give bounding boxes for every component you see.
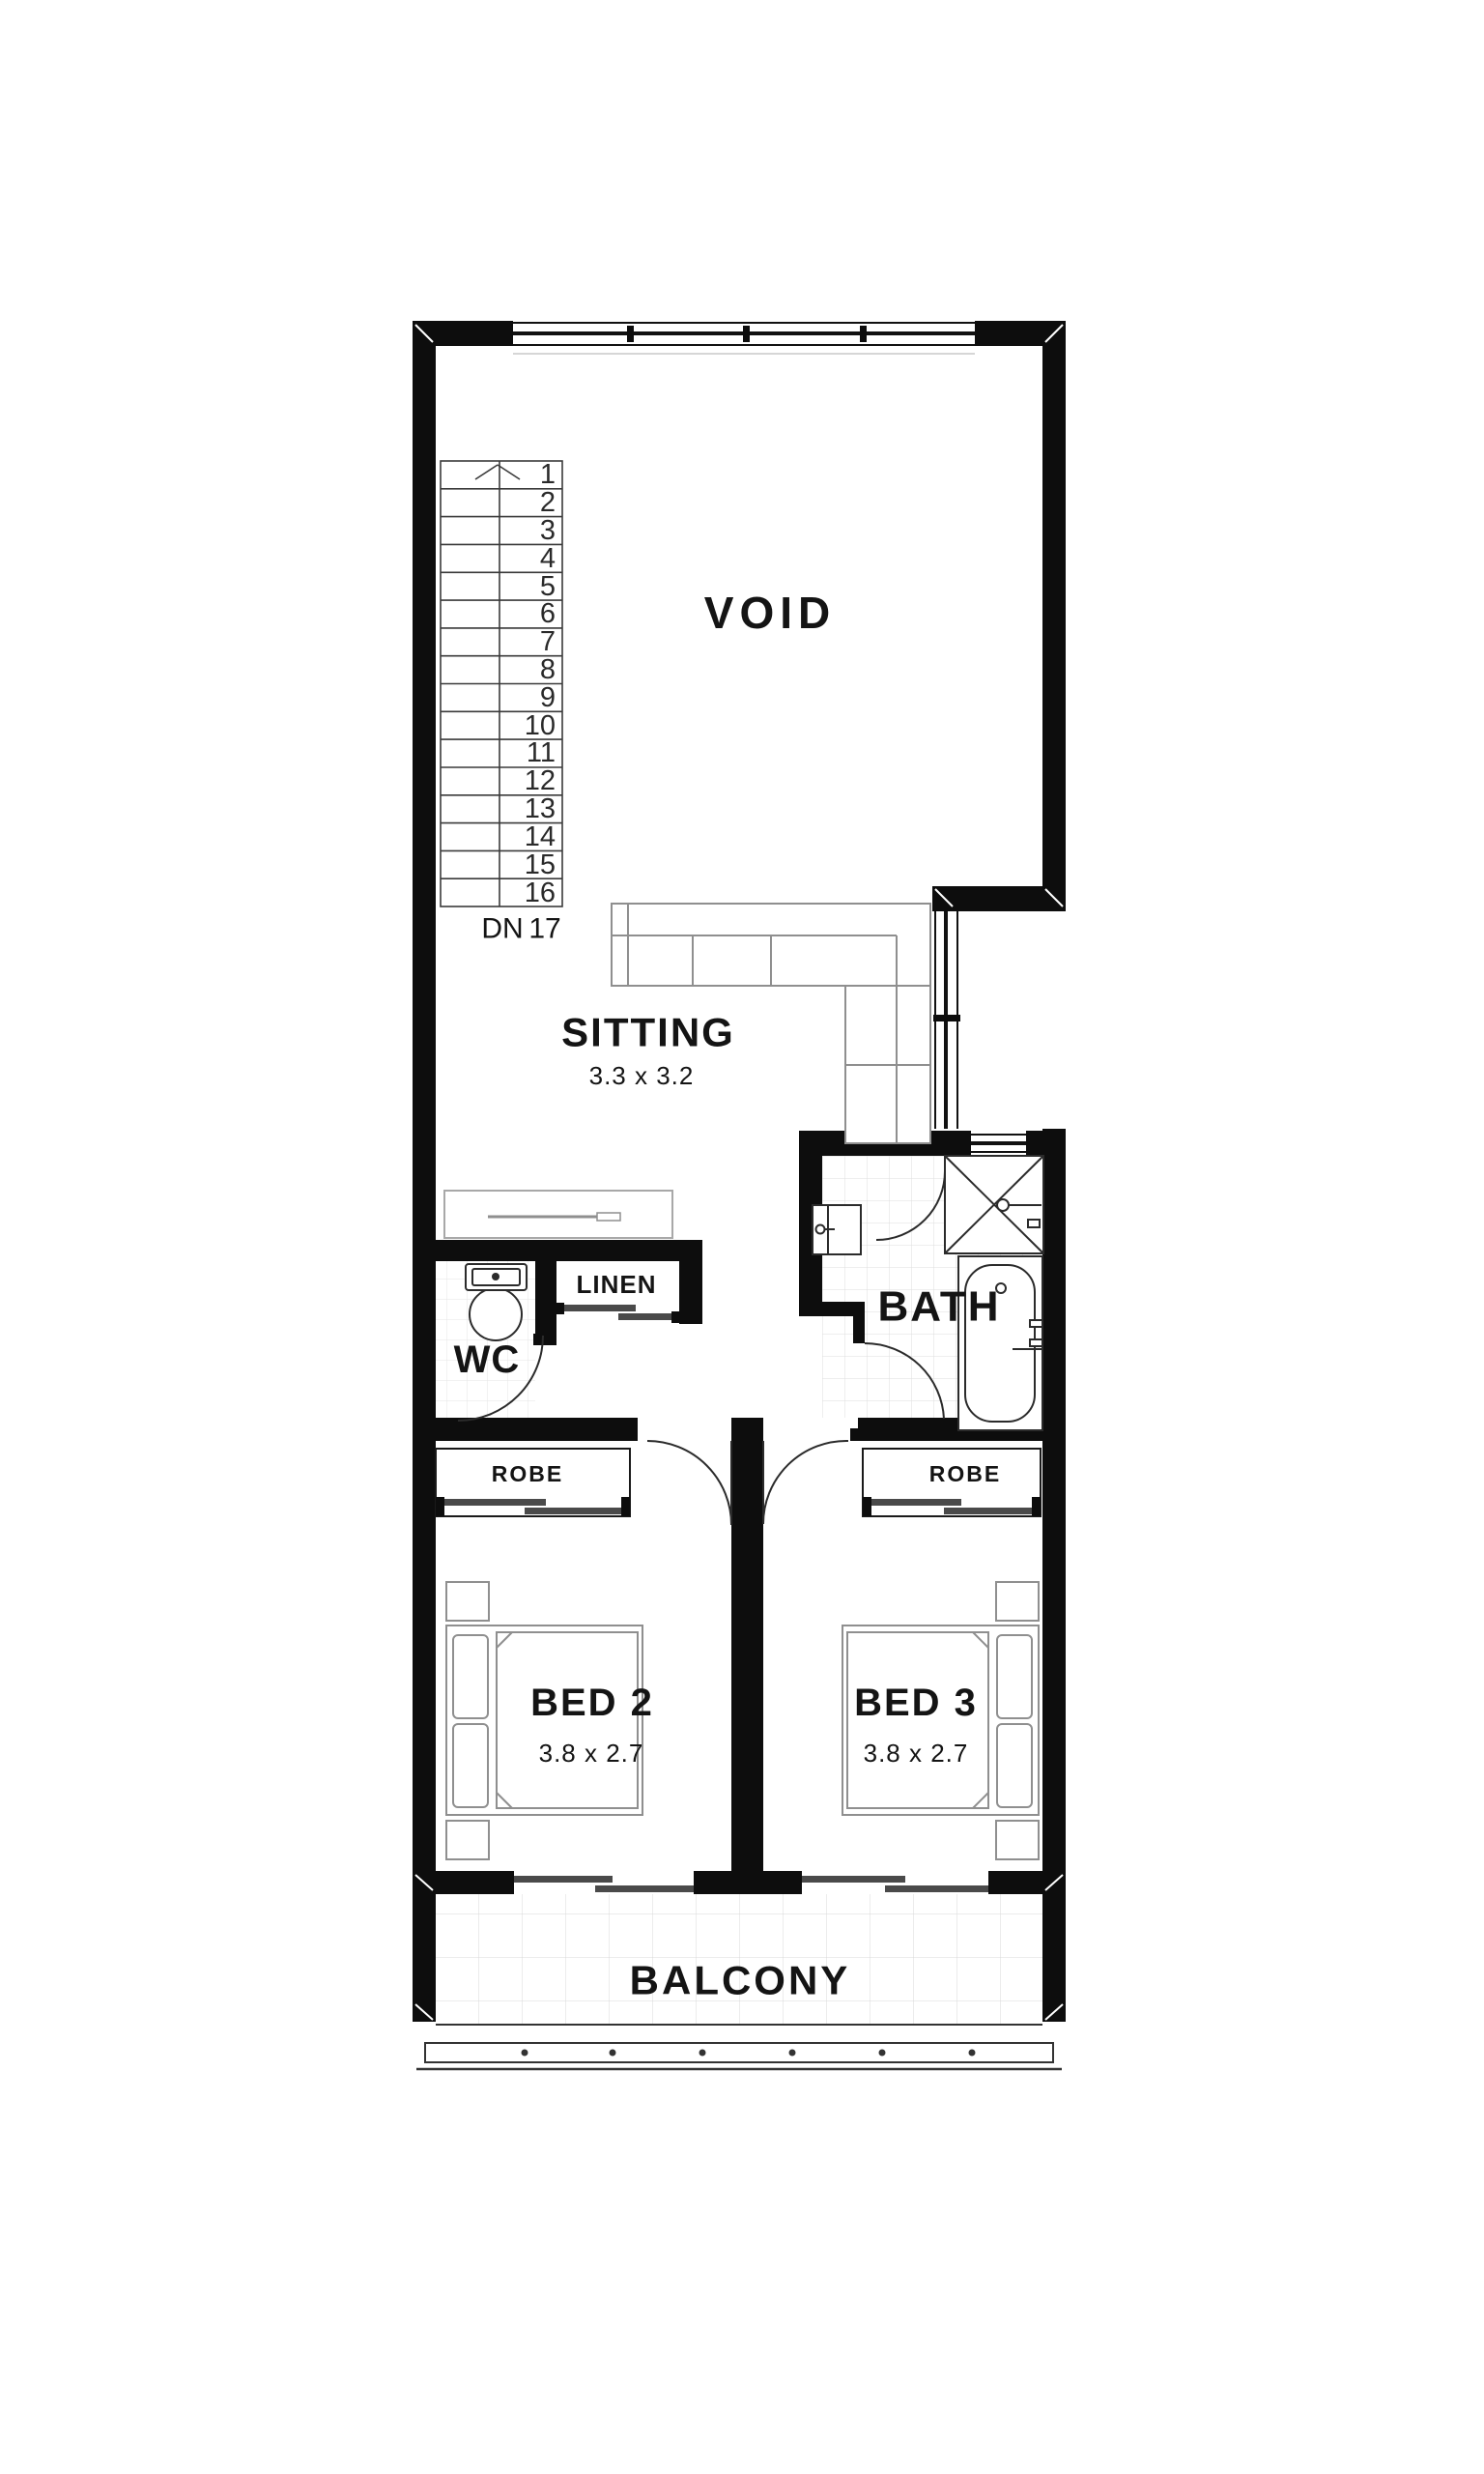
- step-number: 2: [540, 487, 556, 518]
- bath-window: [971, 1135, 1026, 1152]
- step-number: 8: [540, 654, 556, 685]
- void-room-label: VOID: [704, 588, 836, 638]
- step-number: 13: [525, 793, 556, 824]
- sitting-window: [931, 911, 960, 1129]
- balcony-railing: [416, 2025, 1062, 2069]
- step-number: 14: [525, 821, 556, 852]
- bath-room-label: BATH: [878, 1283, 1001, 1331]
- linen-closet: [556, 1303, 679, 1323]
- robe-right-label: ROBE: [929, 1461, 1001, 1486]
- bed3-room-dimensions: 3.8 x 2.7: [864, 1739, 969, 1768]
- floor-plan-canvas: 1 2 3 4 5 6 7 8 9 10 11 12 13 14 15 16 D…: [0, 0, 1484, 2474]
- stairs-down-label: DN: [481, 913, 523, 945]
- balcony-room-label: BALCONY: [630, 1958, 851, 2003]
- step-number: 3: [540, 515, 556, 546]
- top-window: [513, 319, 975, 354]
- bed2-room-label: BED 2: [530, 1682, 654, 1724]
- linen-room-label: LINEN: [577, 1270, 657, 1299]
- stairs-landing-step: 17: [528, 913, 560, 945]
- bed3-room-label: BED 3: [854, 1682, 978, 1724]
- sitting-room-label: SITTING: [561, 1010, 735, 1055]
- step-number: 7: [540, 626, 556, 657]
- step-number: 16: [525, 877, 556, 908]
- bed3-door: [763, 1441, 848, 1524]
- step-number: 15: [525, 849, 556, 880]
- step-number: 1: [540, 459, 556, 490]
- step-number: 12: [525, 765, 556, 796]
- bed2-door: [647, 1441, 731, 1525]
- stairs-up-arrow-icon: [475, 465, 520, 479]
- step-number: 4: [540, 543, 556, 574]
- wc-room-label: WC: [454, 1338, 521, 1381]
- step-number: 11: [527, 737, 556, 768]
- stairs: 1 2 3 4 5 6 7 8 9 10 11 12 13 14 15 16 D…: [441, 459, 562, 945]
- floor-plan-drawing: 1 2 3 4 5 6 7 8 9 10 11 12 13 14 15 16 D…: [0, 0, 1484, 2474]
- bath-vanity: [813, 1205, 861, 1254]
- sitting-room-dimensions: 3.3 x 3.2: [589, 1061, 695, 1090]
- step-number: 9: [540, 682, 556, 713]
- step-number: 6: [540, 598, 556, 629]
- bed2-room-dimensions: 3.8 x 2.7: [539, 1739, 644, 1768]
- toilet: [466, 1264, 527, 1340]
- sideboard: [444, 1191, 672, 1238]
- robe-left-label: ROBE: [492, 1461, 563, 1486]
